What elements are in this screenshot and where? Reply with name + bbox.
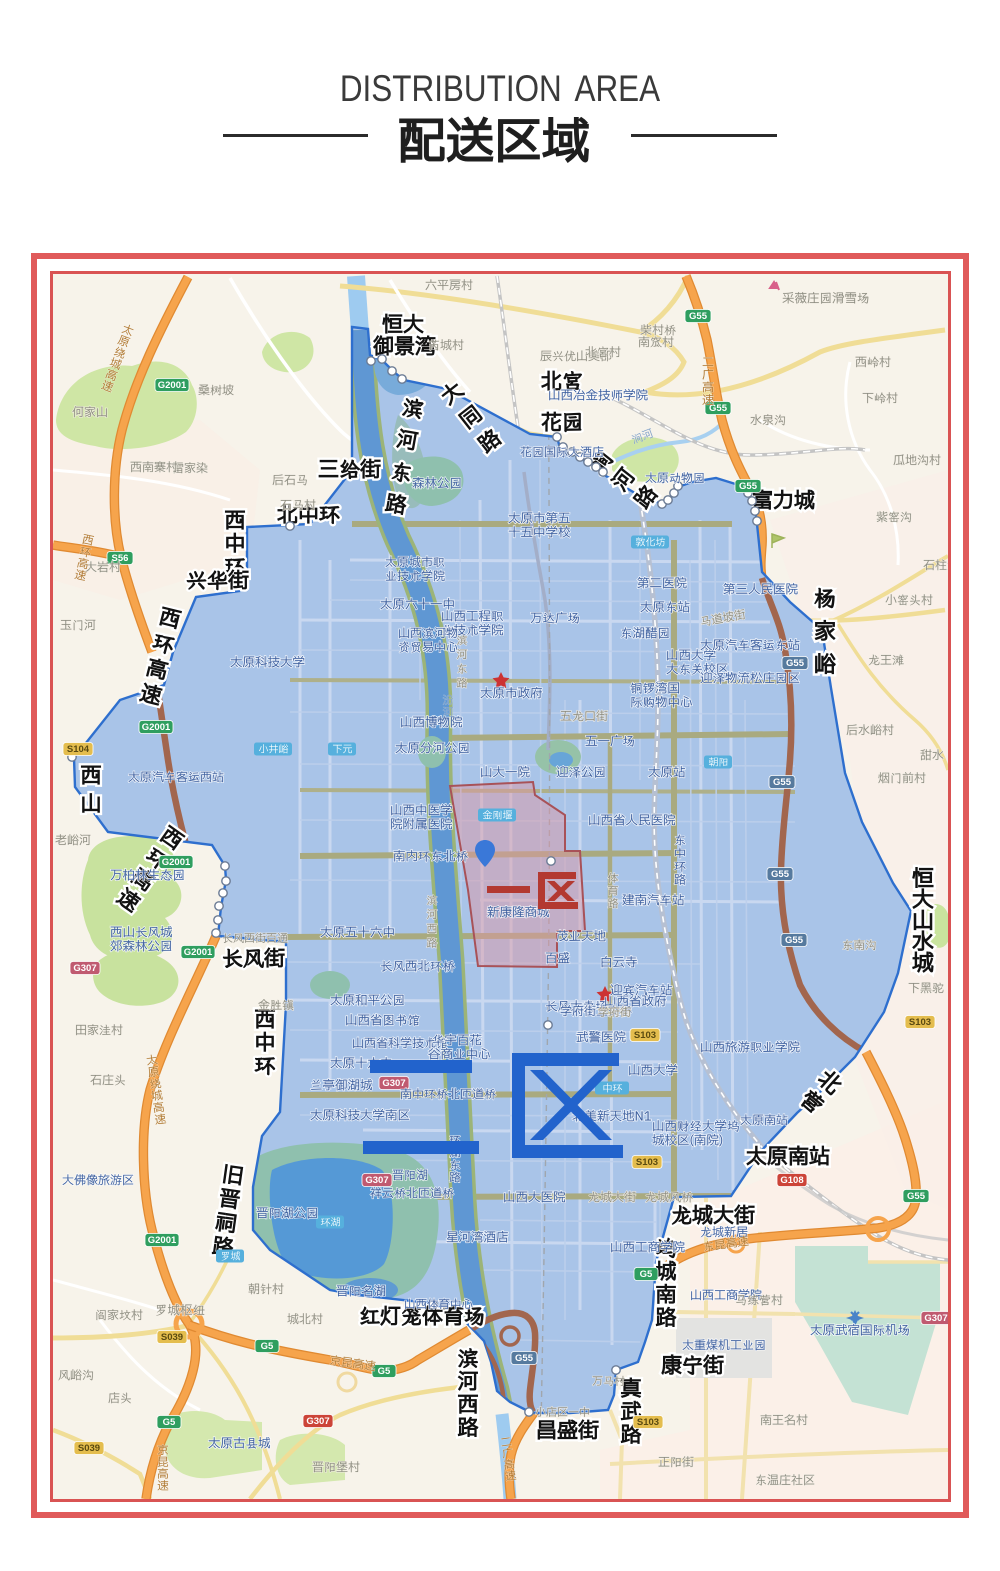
svg-text:G55: G55 [739,481,758,492]
svg-text:G55: G55 [515,1353,534,1364]
svg-text:G55: G55 [689,311,708,322]
svg-text:S56: S56 [112,553,129,564]
svg-text:G307: G307 [924,1313,947,1324]
svg-text:G307: G307 [73,963,96,974]
svg-text:G2001: G2001 [148,1235,177,1246]
svg-text:G55: G55 [907,1191,926,1202]
svg-text:G5: G5 [378,1366,391,1377]
svg-text:G2001: G2001 [158,380,187,391]
svg-text:S103: S103 [637,1417,659,1428]
svg-text:S104: S104 [67,744,90,755]
svg-text:G5: G5 [640,1269,653,1280]
svg-text:G307: G307 [365,1175,388,1186]
svg-text:G55: G55 [785,935,804,946]
svg-text:G55: G55 [786,658,805,669]
svg-text:G55: G55 [773,777,792,788]
svg-text:G2001: G2001 [184,947,213,958]
svg-text:G307: G307 [306,1416,329,1427]
svg-text:G108: G108 [780,1175,803,1186]
svg-text:S103: S103 [636,1157,658,1168]
svg-text:G5: G5 [261,1341,274,1352]
svg-text:S039: S039 [78,1443,100,1454]
svg-text:G2001: G2001 [162,857,191,868]
svg-text:G5: G5 [163,1417,176,1428]
svg-text:S103: S103 [909,1017,931,1028]
svg-text:S103: S103 [634,1030,656,1041]
svg-text:G307: G307 [382,1078,405,1089]
svg-text:G2001: G2001 [142,722,171,733]
svg-text:S039: S039 [161,1332,183,1343]
svg-text:G55: G55 [771,869,790,880]
